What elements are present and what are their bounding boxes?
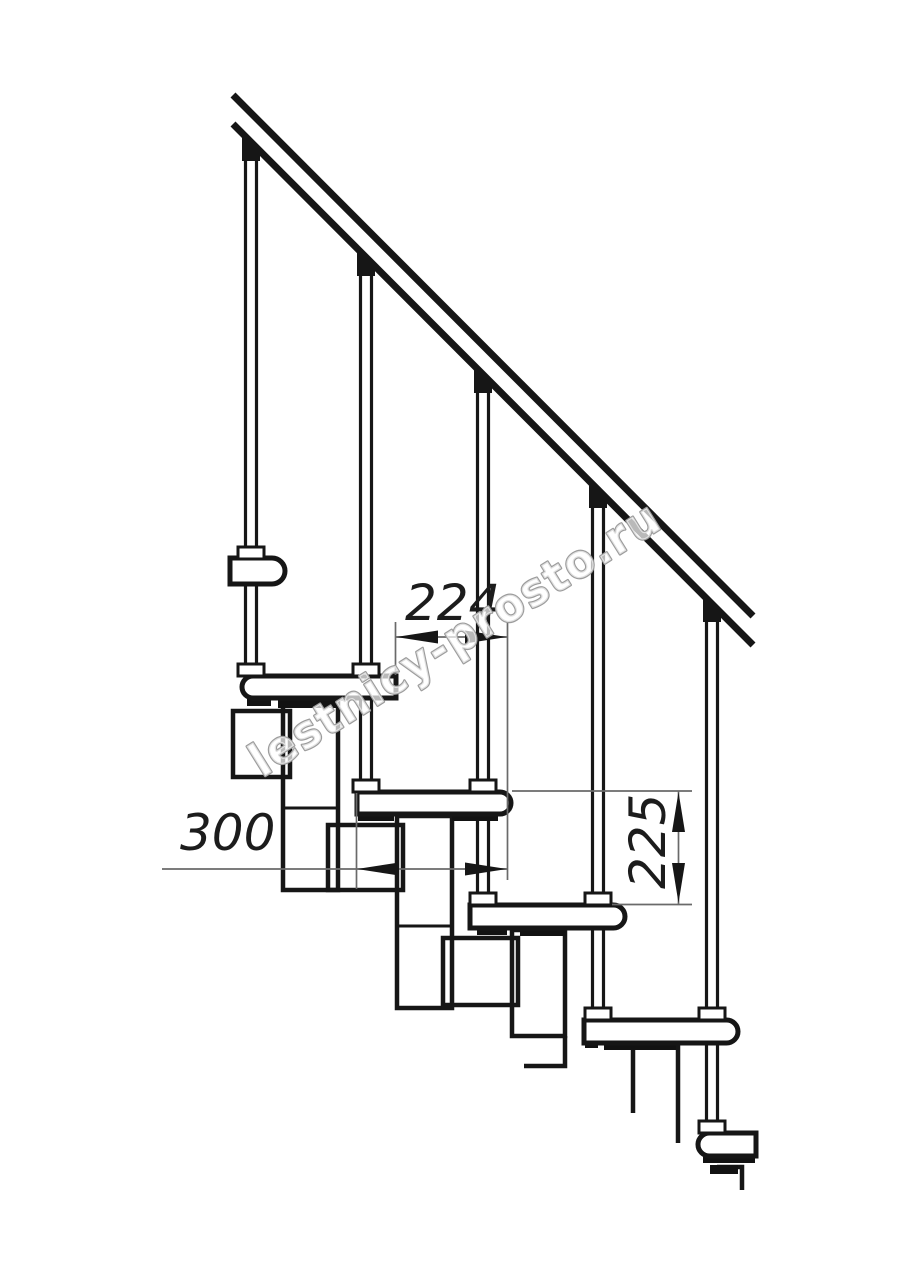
landing-edge — [230, 558, 285, 584]
drawing-page: 224 300 225 lestnicy-prosto.ru — [0, 0, 914, 1280]
tread-2 — [357, 792, 511, 814]
tread-4 — [584, 1020, 738, 1043]
dimension-label-225: 225 — [619, 794, 677, 889]
tread-3 — [470, 905, 625, 928]
staircase-drawing: 224 300 225 lestnicy-prosto.ru — [0, 0, 914, 1280]
tread-5 — [698, 1133, 756, 1156]
dimension-label-300: 300 — [180, 804, 275, 862]
